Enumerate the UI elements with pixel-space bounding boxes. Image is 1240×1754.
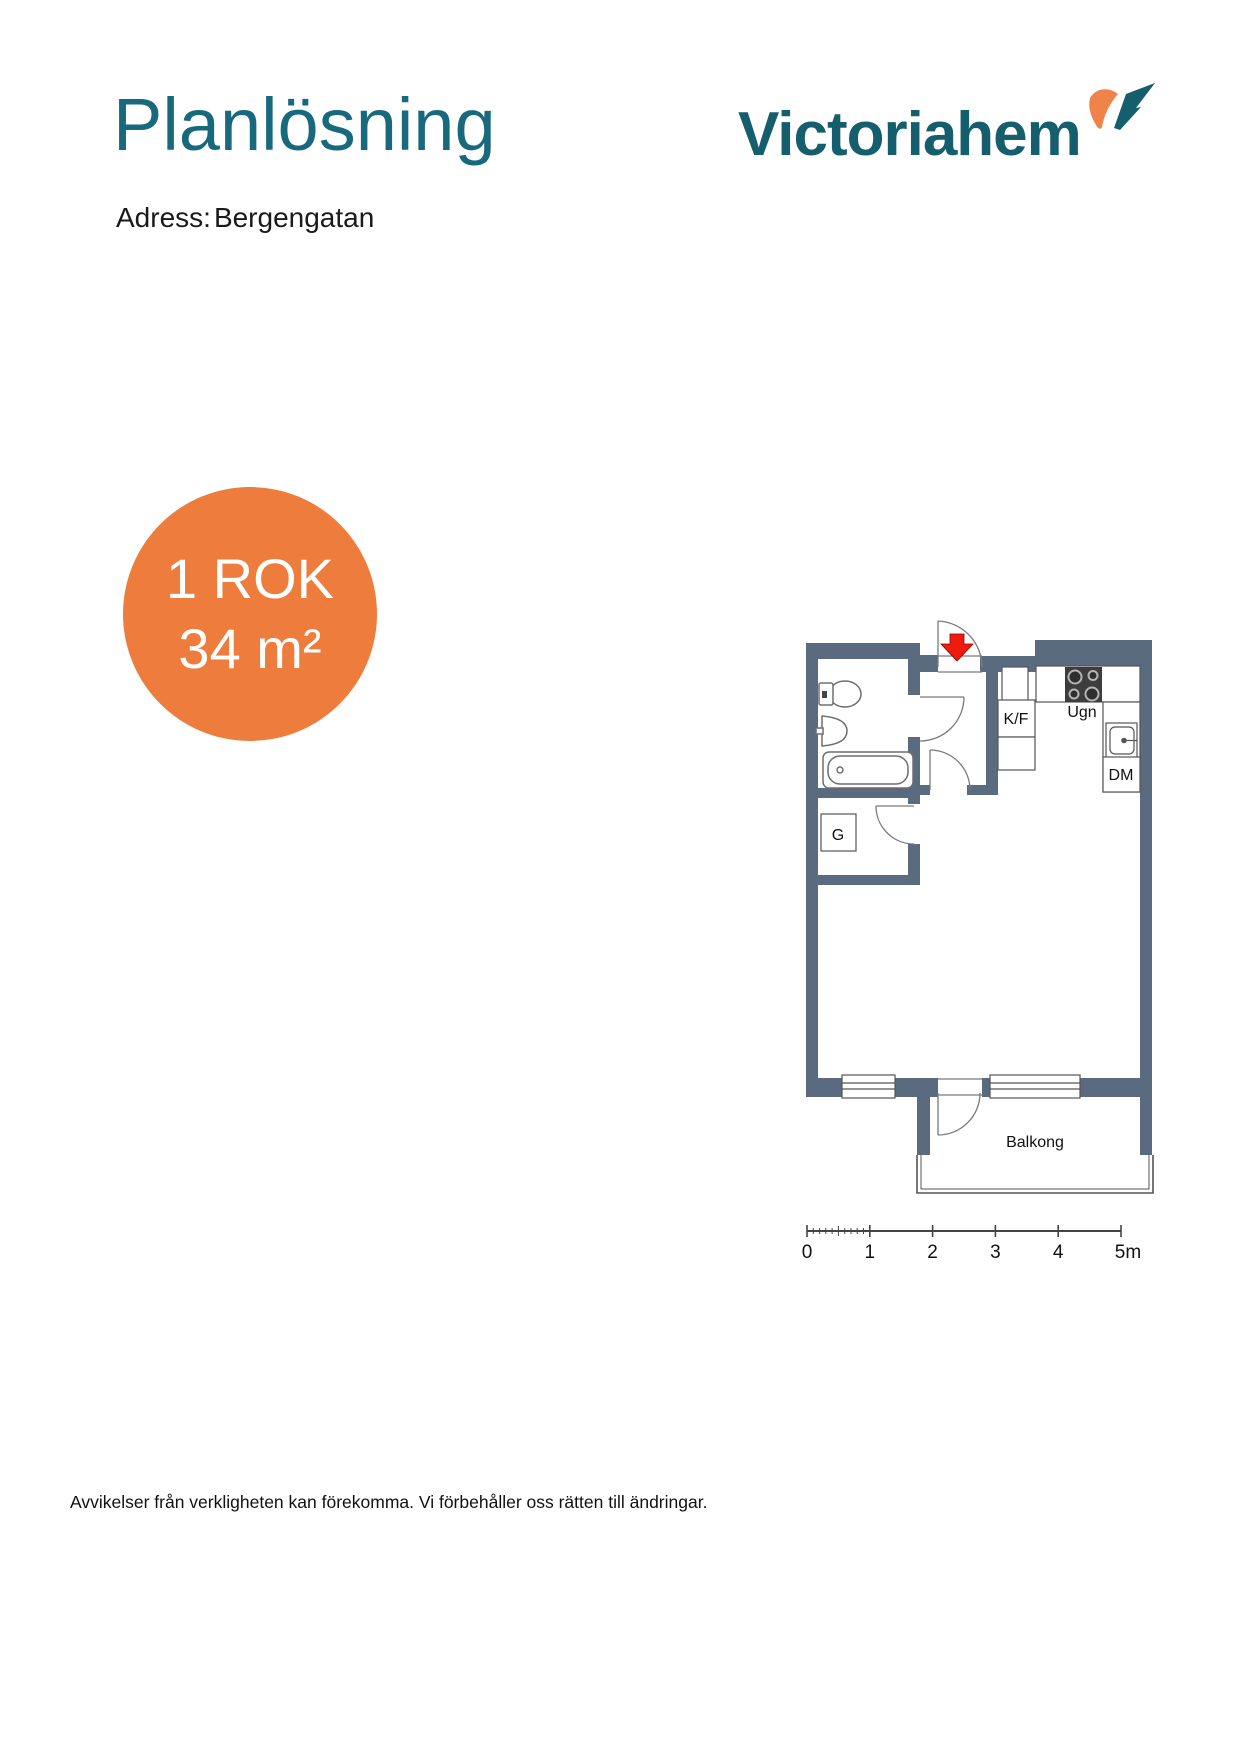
svg-text:1: 1 bbox=[865, 1242, 876, 1263]
svg-text:4: 4 bbox=[1053, 1242, 1064, 1263]
svg-text:5m: 5m bbox=[1115, 1242, 1141, 1263]
kitchen-sink-icon bbox=[1106, 723, 1137, 758]
address-value: Bergengatan bbox=[214, 202, 374, 233]
label-fridge-freezer: K/F bbox=[1004, 711, 1029, 728]
area-badge: 1 ROK 34 m² bbox=[123, 487, 377, 741]
brand-logo: Victoriahem bbox=[738, 104, 1168, 194]
hall-door bbox=[930, 750, 970, 790]
sink-basin-icon bbox=[822, 716, 847, 746]
swoosh-orange-wing bbox=[1089, 89, 1118, 129]
entrance-arrow-icon bbox=[941, 634, 973, 661]
footer-disclaimer: Avvikelser från verkligheten kan förekom… bbox=[70, 1492, 707, 1513]
svg-text:2: 2 bbox=[927, 1242, 938, 1263]
swoosh-teal-arrow bbox=[1114, 83, 1155, 130]
bathroom-door bbox=[920, 697, 964, 741]
address-row: Adress:Bergengatan bbox=[116, 202, 374, 234]
brand-swoosh-icon bbox=[1086, 82, 1158, 138]
balcony-door bbox=[938, 1079, 982, 1135]
svg-text:3: 3 bbox=[990, 1242, 1001, 1263]
svg-text:0: 0 bbox=[802, 1242, 813, 1263]
label-wardrobe: G bbox=[832, 827, 844, 844]
window-right bbox=[990, 1075, 1080, 1098]
label-balcony: Balkong bbox=[1006, 1134, 1064, 1151]
label-dishwasher: DM bbox=[1109, 767, 1134, 784]
balcony-railing bbox=[917, 1155, 1153, 1193]
floor-plan: K/F Ugn DM G Balkong 0 1 2 3 4 5m bbox=[795, 560, 1165, 1270]
wardrobe-room-door bbox=[876, 806, 914, 844]
badge-rooms: 1 ROK bbox=[166, 544, 334, 614]
window-left bbox=[842, 1075, 895, 1098]
page-title: Planlösning bbox=[113, 84, 496, 165]
stove-icon bbox=[1065, 667, 1102, 702]
toilet-icon bbox=[829, 681, 861, 707]
brand-logo-text: Victoriahem bbox=[738, 100, 1081, 169]
bathtub-icon bbox=[823, 752, 913, 788]
bathroom-fixtures bbox=[816, 681, 913, 788]
scale-bar bbox=[807, 1225, 1121, 1237]
hall-cabinet bbox=[1002, 667, 1028, 702]
address-label: Adress: bbox=[116, 202, 211, 233]
badge-area: 34 m² bbox=[178, 614, 321, 684]
scale-bar-labels: 0 1 2 3 4 5m bbox=[802, 1242, 1141, 1263]
label-oven: Ugn bbox=[1067, 704, 1096, 721]
